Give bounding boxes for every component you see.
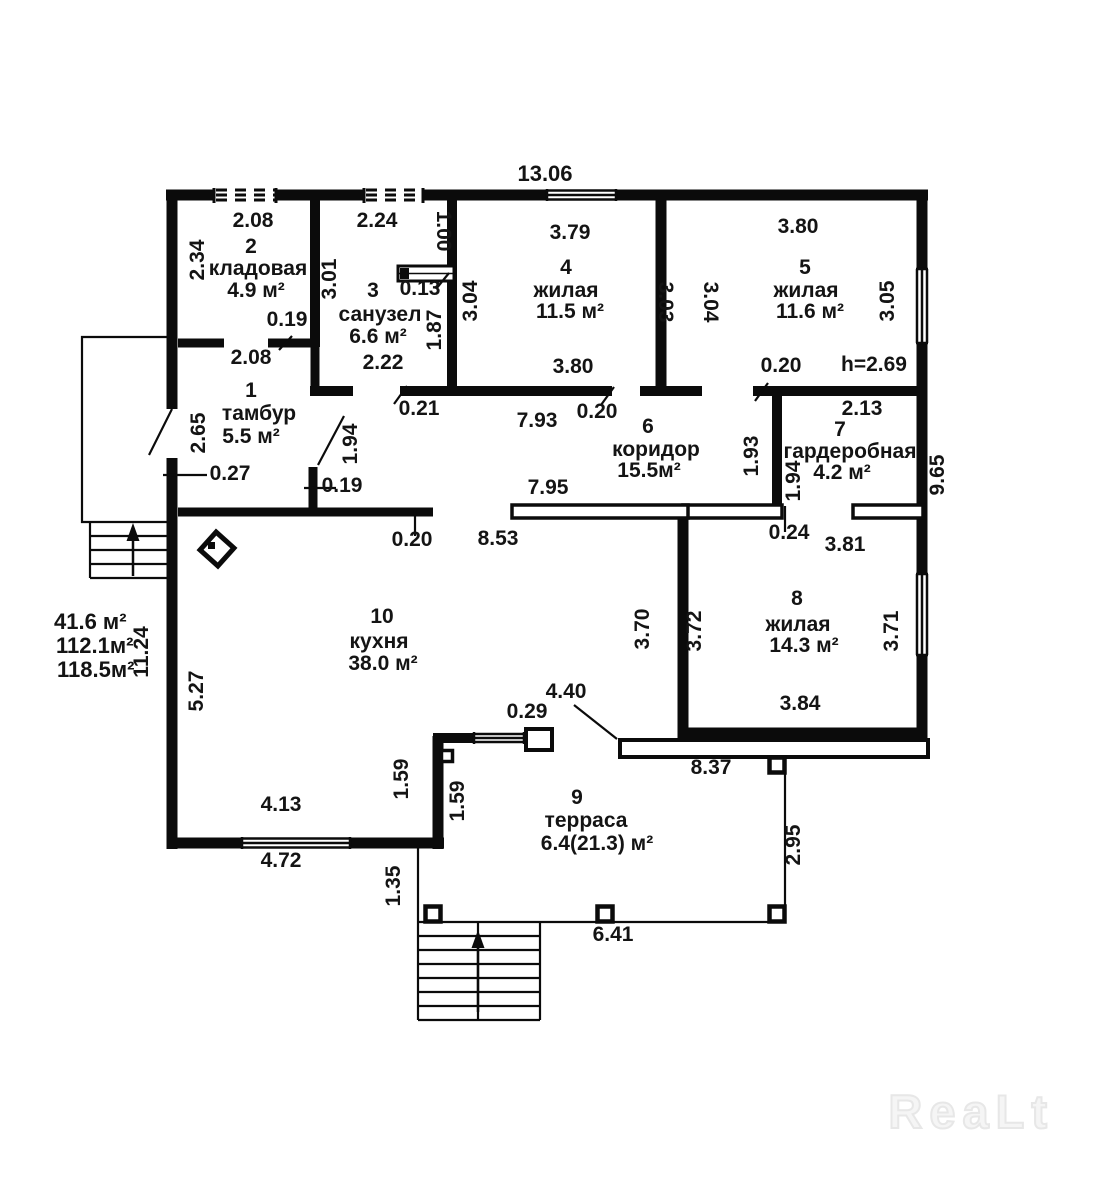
dimension-label: 0.20 — [392, 528, 433, 551]
room-name: коридор — [612, 438, 700, 461]
dimension-label: 9.65 — [926, 454, 949, 495]
dimension-label: 3.81 — [825, 533, 866, 556]
dimension-label: 0.29 — [507, 700, 548, 723]
room-area: 6.6 м² — [349, 325, 407, 348]
dimension-label: 3.71 — [880, 610, 903, 651]
dimension-label: 0.19 — [267, 308, 308, 331]
dimension-label: 0.20 — [577, 400, 618, 423]
porch — [82, 337, 168, 578]
dimension-label: 2.24 — [357, 209, 398, 232]
room-number: 8 — [791, 587, 803, 610]
dimension-label: 3.70 — [631, 609, 654, 650]
dimension-label: 0.24 — [769, 521, 810, 544]
door-leader-line — [574, 705, 617, 739]
dimension-label: 13.06 — [517, 161, 572, 186]
room-number: 1 — [245, 379, 257, 402]
dimension-label: 4.72 — [261, 849, 302, 872]
room-number: 5 — [799, 256, 811, 279]
dimension-label: 0.27 — [210, 462, 251, 485]
dimension-label: 0.13 — [400, 277, 441, 300]
south-wall — [620, 740, 928, 757]
dimension-label: 1.59 — [446, 781, 469, 822]
entry-door-swing — [149, 409, 172, 455]
summary-area: 41.6 м² — [54, 609, 127, 634]
dimension-label: 3.03 — [654, 282, 677, 323]
room-number: 3 — [367, 279, 379, 302]
dimension-label: 2.13 — [842, 397, 883, 420]
dimension-label: 3.79 — [550, 221, 591, 244]
dimension-label: 2.22 — [363, 351, 404, 374]
room-name: санузел — [339, 303, 422, 326]
dimension-label: 2.34 — [186, 239, 209, 280]
dimension-label: 0.19 — [322, 474, 363, 497]
room-name: кладовая — [209, 257, 308, 280]
room-area: 11.5 м² — [536, 300, 604, 323]
dimension-label: 3.01 — [318, 258, 341, 299]
dimension-label: 3.84 — [780, 692, 821, 715]
realt-watermark: ReaLt — [888, 1084, 1054, 1139]
dimension-label: 1.87 — [423, 310, 446, 351]
dimension-label: 8.53 — [478, 527, 519, 550]
room-name: жилая — [764, 613, 830, 636]
dimension-label: 2.08 — [231, 346, 272, 369]
dimension-label: 3.04 — [459, 280, 482, 321]
dimension-label: 1.94 — [339, 423, 362, 464]
terrace-door-frame — [526, 729, 552, 750]
room-area: 38.0 м² — [348, 652, 417, 675]
floor-plan-page: 13.062.082.241.002.342кладовая4.9 м²3.01… — [0, 0, 1100, 1187]
dimension-label: 7.95 — [528, 476, 569, 499]
dimension-label: 8.37 — [691, 756, 732, 779]
dimension-label: 0.21 — [399, 397, 440, 420]
room-area: 4.2 м² — [813, 461, 871, 484]
dimension-label: 4.40 — [546, 680, 587, 703]
dimension-label: 3.80 — [778, 215, 819, 238]
dimension-label: 0.20 — [761, 354, 802, 377]
dimension-label: 4.13 — [261, 793, 302, 816]
dimension-label: 1.93 — [740, 436, 763, 477]
labels-layer: 13.062.082.241.002.342кладовая4.9 м²3.01… — [54, 161, 949, 946]
room-area: 14.3 м² — [769, 634, 838, 657]
room-number: 7 — [834, 418, 846, 441]
floor-plan-drawing: 13.062.082.241.002.342кладовая4.9 м²3.01… — [0, 0, 1100, 1187]
dimension-label: 1.59 — [390, 759, 413, 800]
dimension-label: 2.95 — [782, 824, 805, 865]
dimension-label: 1.94 — [782, 460, 805, 501]
dimension-label: 7.93 — [517, 409, 558, 432]
room-number: 2 — [245, 235, 257, 258]
dimension-label: 2.65 — [187, 412, 210, 453]
dimension-label: 3.04 — [699, 282, 722, 323]
dimension-label: 1.00 — [432, 211, 455, 252]
dimension-label: 2.08 — [233, 209, 274, 232]
room-number: 9 — [571, 786, 583, 809]
ceiling-height: h=2.69 — [841, 353, 907, 376]
room-area: 5.5 м² — [222, 425, 280, 448]
room-name: кухня — [349, 630, 408, 653]
summary-area: 112.1м² — [56, 633, 133, 658]
room-name: гардеробная — [784, 440, 917, 463]
dimension-label: 3.05 — [876, 280, 899, 321]
dimension-label: 1.35 — [382, 865, 405, 906]
dimension-label: 3.72 — [683, 611, 706, 652]
room-number: 4 — [560, 256, 572, 279]
stove-symbol — [200, 532, 234, 566]
room-number: 6 — [642, 415, 654, 438]
dimension-label: 6.41 — [593, 923, 634, 946]
room-name: жилая — [532, 279, 598, 302]
room-area: 11.6 м² — [776, 300, 844, 323]
room-name: тамбур — [222, 402, 296, 425]
room-area: 15.5м² — [617, 459, 680, 482]
room-name: терраса — [545, 809, 628, 832]
terrace-stairs — [418, 922, 540, 1020]
room-name: жилая — [772, 279, 838, 302]
summary-area: 118.5м² — [57, 657, 134, 682]
dimension-label: 3.80 — [553, 355, 594, 378]
room-number: 10 — [370, 605, 393, 628]
room-area: 4.9 м² — [227, 279, 285, 302]
dimension-label: 5.27 — [185, 671, 208, 712]
room-area: 6.4(21.3) м² — [541, 832, 653, 855]
